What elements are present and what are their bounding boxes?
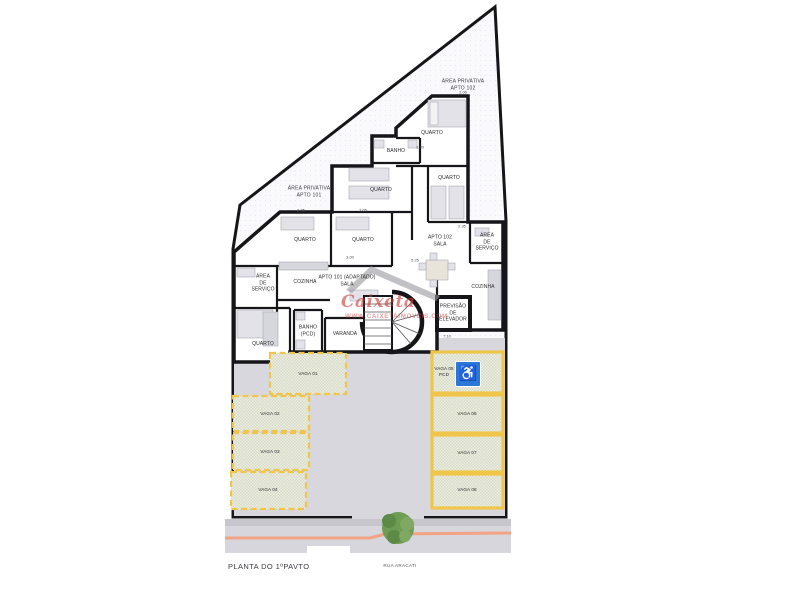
dimension-label: 3.20 bbox=[416, 145, 424, 150]
vaga-07-label: VAGA 07 bbox=[457, 450, 476, 456]
room-label-servico-101: ÁREA DE SERVIÇO bbox=[251, 273, 274, 293]
wheelchair-icon: ♿ bbox=[455, 361, 481, 387]
vaga-04-label: VAGA 04 bbox=[258, 487, 277, 493]
vaga-06-label: VAGA 06 bbox=[457, 411, 476, 417]
room-label-banho-pcd: BANHO (PCD) bbox=[299, 325, 317, 338]
room-label-banho-102: BANHO bbox=[387, 148, 405, 155]
room-label-sala-102: APTO 102 SALA bbox=[428, 235, 452, 248]
watermark-brand: Caixeta bbox=[341, 292, 415, 312]
sidewalk bbox=[225, 519, 511, 554]
plan-title: PLANTA DO 1ºPAVTO bbox=[228, 562, 310, 571]
street-name-label: RUA ARACATI bbox=[383, 563, 416, 568]
room-label-quarto-left: QUARTO bbox=[294, 237, 316, 244]
dimension-label: 3.00 bbox=[346, 255, 354, 260]
dimension-label: 2.05 bbox=[297, 208, 305, 213]
vaga-02-label: VAGA 02 bbox=[260, 411, 279, 417]
floorplan-page: ÁREA PRIVATIVA APTO 102 ÁREA PRIVATIVA A… bbox=[0, 0, 800, 590]
room-label-quarto-102b: QUARTO bbox=[438, 175, 460, 182]
dimension-label: 2.35 bbox=[458, 224, 466, 229]
vaga-08-label: VAGA 08 bbox=[457, 487, 476, 493]
room-label-cozinha-102: COZINHA bbox=[471, 284, 494, 291]
dimension-label: 3.05 bbox=[359, 208, 367, 213]
room-label-quarto-102a: QUARTO bbox=[421, 130, 443, 137]
room-label-servico-102: ÁREA DE SERVIÇO bbox=[475, 232, 498, 252]
room-label-sala-101: APTO 101 (ADAPTADO) SALA bbox=[318, 275, 375, 288]
room-label-quarto-101: QUARTO bbox=[252, 341, 274, 348]
watermark-url: WWW.CAIXETAIMOVEIS.COM bbox=[345, 313, 448, 320]
area-label-apto101: ÁREA PRIVATIVA APTO 101 bbox=[288, 186, 331, 199]
room-label-varanda: VARANDA bbox=[333, 331, 358, 338]
dimension-label: 2.06 bbox=[459, 90, 467, 95]
vaga-01-label: VAGA 01 bbox=[298, 371, 317, 377]
dimension-label: 7.10 bbox=[443, 334, 451, 339]
room-label-quarto-center: QUARTO bbox=[352, 237, 374, 244]
tree bbox=[382, 512, 414, 544]
dimension-label: 5.25 bbox=[411, 258, 419, 263]
vaga-03-label: VAGA 03 bbox=[260, 449, 279, 455]
room-label-cozinha-101: COZINHA bbox=[293, 279, 316, 286]
vaga-05-pcd-label: VAGA 05 PCD bbox=[434, 366, 453, 378]
room-label-quarto-center-top: QUARTO bbox=[370, 187, 392, 194]
